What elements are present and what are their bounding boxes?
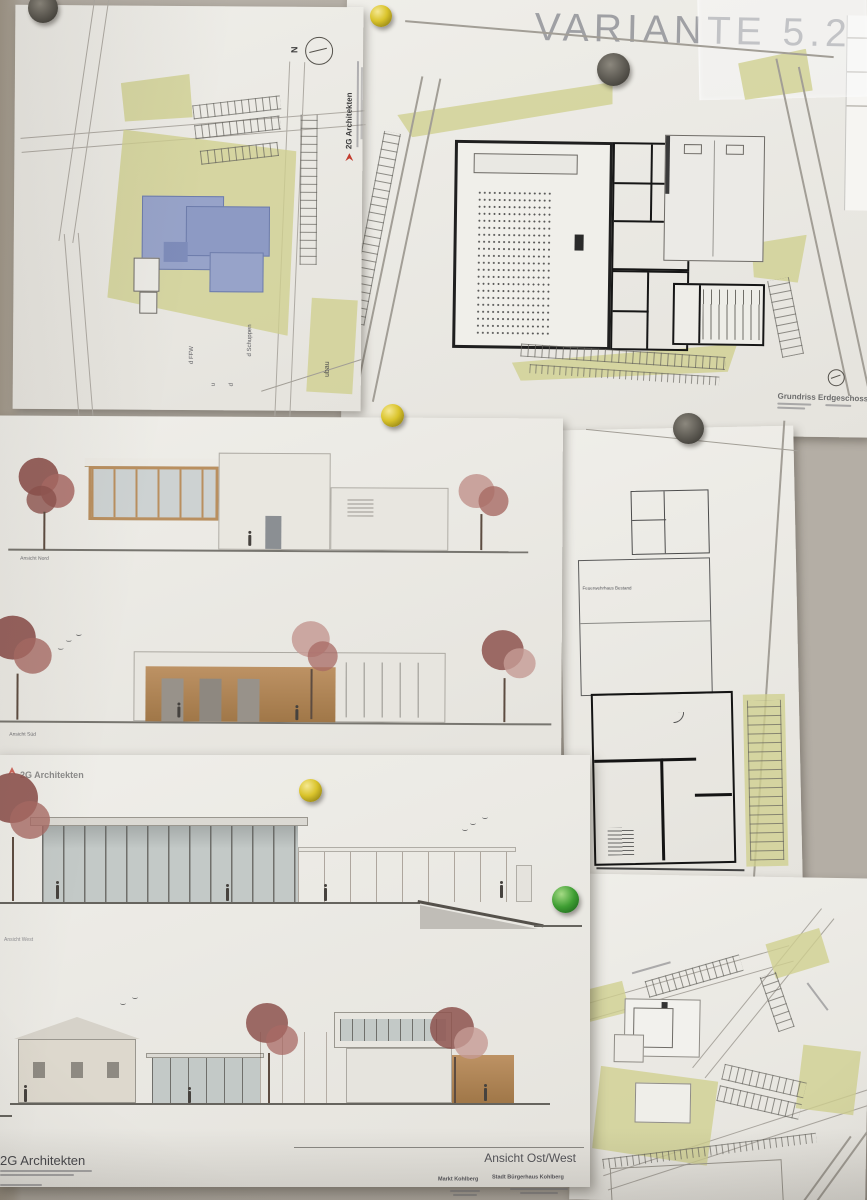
stage bbox=[474, 153, 578, 174]
label-ansicht-west: Ansicht West bbox=[4, 937, 33, 943]
legend-schuppen: d Schuppen bbox=[247, 302, 253, 356]
north-label: N bbox=[289, 46, 299, 53]
plan-garage-annex bbox=[672, 283, 765, 346]
wood-frame-box bbox=[88, 466, 218, 521]
sheet-floorplan-right: Feuerwehrhaus Bestand bbox=[557, 426, 803, 889]
firm-logo-label: 2G Architekten bbox=[344, 57, 354, 149]
project-block: Stadt Bürgerhaus Kohlberg bbox=[492, 1169, 586, 1194]
sheet-elevations-ost-west: 2G Architekten Ansicht Wes bbox=[0, 755, 590, 1187]
sheet-siteplan-top-left: N 2G Architekten d FFW u d d Schuppen ub… bbox=[13, 5, 364, 411]
plan-existing-building bbox=[663, 135, 765, 262]
firm-logo-label: 2G Architekten bbox=[20, 770, 84, 780]
legend-u: u bbox=[211, 383, 217, 386]
legend-ffw: d FFW bbox=[189, 320, 195, 364]
sheet-siteplan-bottom-right bbox=[569, 873, 867, 1200]
pushpin-yellow bbox=[370, 5, 392, 27]
project-name: Stadt Bürgerhaus Kohlberg bbox=[492, 1174, 564, 1180]
scale-figure bbox=[248, 535, 251, 546]
label-ansicht-sued: Ansicht Süd bbox=[9, 732, 36, 738]
edge-note: ubau bbox=[324, 347, 331, 377]
parking-row bbox=[747, 700, 784, 861]
legend-d: d bbox=[229, 383, 235, 386]
label-ansicht-nord: Ansicht Nord bbox=[20, 556, 49, 562]
glass-hall bbox=[42, 826, 298, 902]
elevation-ost bbox=[0, 985, 590, 1135]
plan-lower-rooms bbox=[591, 691, 737, 866]
elevation-nord: Ansicht Nord bbox=[0, 416, 563, 579]
elevation-sued: Ansicht Süd bbox=[0, 576, 562, 749]
pushpin-green bbox=[552, 886, 579, 913]
plan-mid-outline bbox=[578, 557, 713, 696]
firm-logo: 2G Architekten bbox=[344, 57, 354, 149]
north-arrow-icon bbox=[305, 37, 333, 65]
plan-upper-rooms bbox=[631, 489, 710, 555]
wood-facade bbox=[298, 852, 516, 902]
bird-icon bbox=[66, 638, 72, 642]
firm-footer: 2G Architekten bbox=[0, 1153, 92, 1186]
firm-logo-mark-icon bbox=[345, 153, 353, 161]
photo-pinboard: VARIANTE 5.2 bbox=[0, 0, 867, 1200]
pushpin-yellow bbox=[381, 404, 404, 427]
firm-footer-label: 2G Architekten bbox=[0, 1153, 92, 1168]
client-name: Markt Kohlberg bbox=[438, 1176, 478, 1182]
compass-icon bbox=[828, 369, 845, 386]
sheet-title: Ansicht Ost/West bbox=[484, 1151, 576, 1165]
pushpin-dark bbox=[673, 413, 704, 444]
elevation-west: Ansicht West bbox=[0, 785, 590, 955]
client-block: Markt Kohlberg bbox=[438, 1171, 492, 1196]
pushpin-yellow bbox=[299, 779, 322, 802]
pushpin-dark bbox=[597, 53, 630, 86]
seating-grid bbox=[475, 189, 551, 336]
sheet-elevations-nord-sued: Ansicht Nord bbox=[0, 416, 563, 777]
plan-hall bbox=[452, 140, 613, 350]
